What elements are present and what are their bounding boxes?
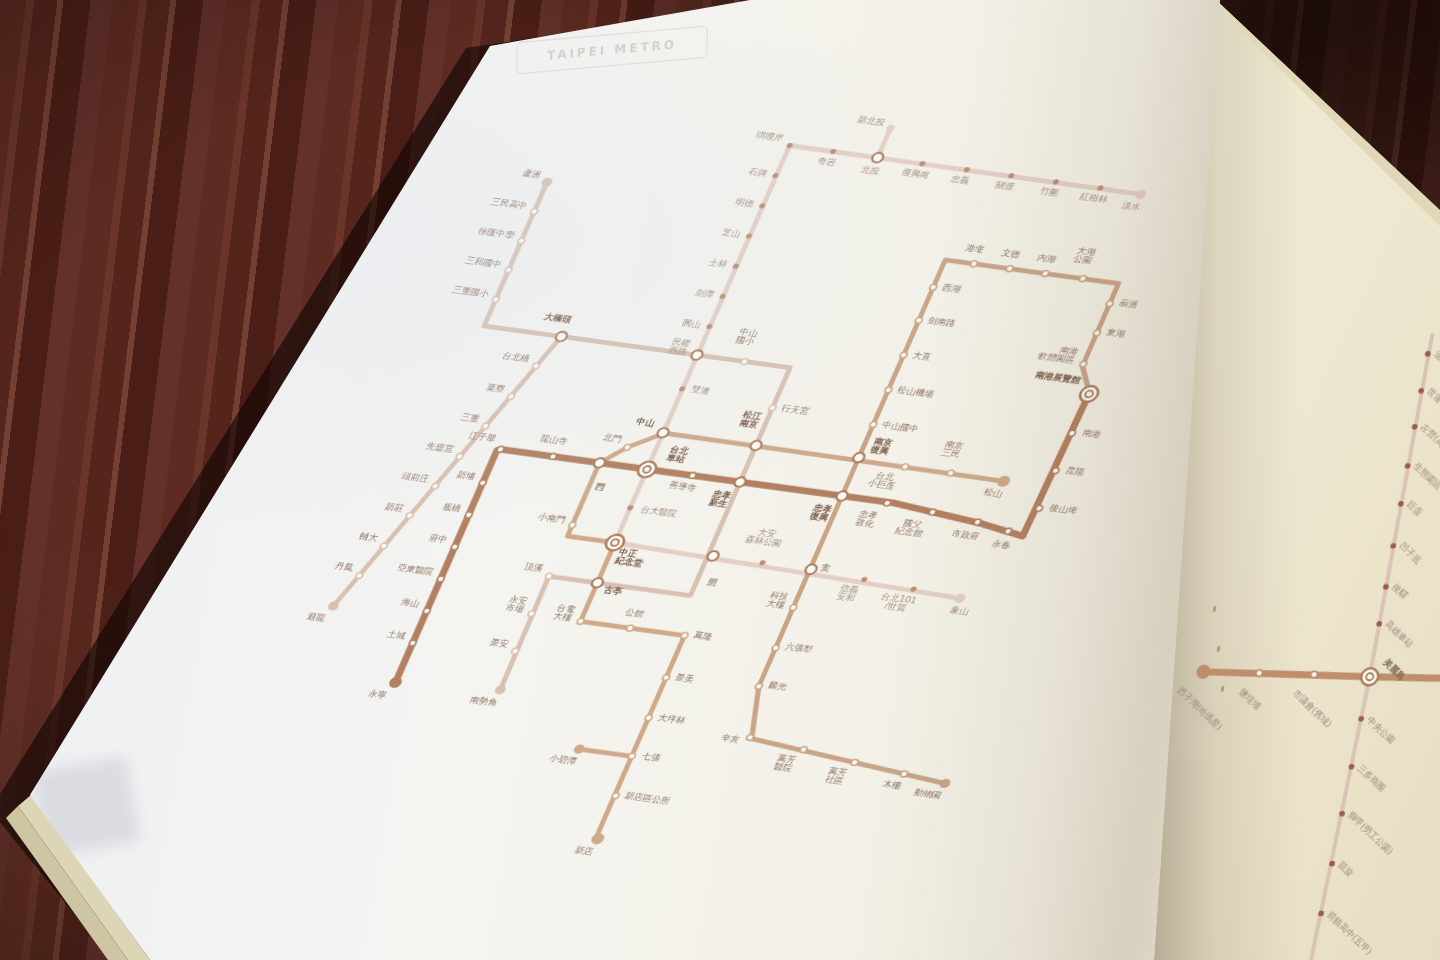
station-dot-西子灣(哈瑪星) xyxy=(1195,664,1211,679)
station-dot-美麗島 xyxy=(1360,668,1380,686)
station-dot-鹽埕埔 xyxy=(1256,670,1263,677)
notebook-photo: 油廠國家世運左營(高鐵)生態園區巨蛋凹子底後驛高雄車站美麗島中央公園三多商圈獅甲… xyxy=(0,0,1440,960)
station-dot-市議會(舊城) xyxy=(1310,671,1317,678)
